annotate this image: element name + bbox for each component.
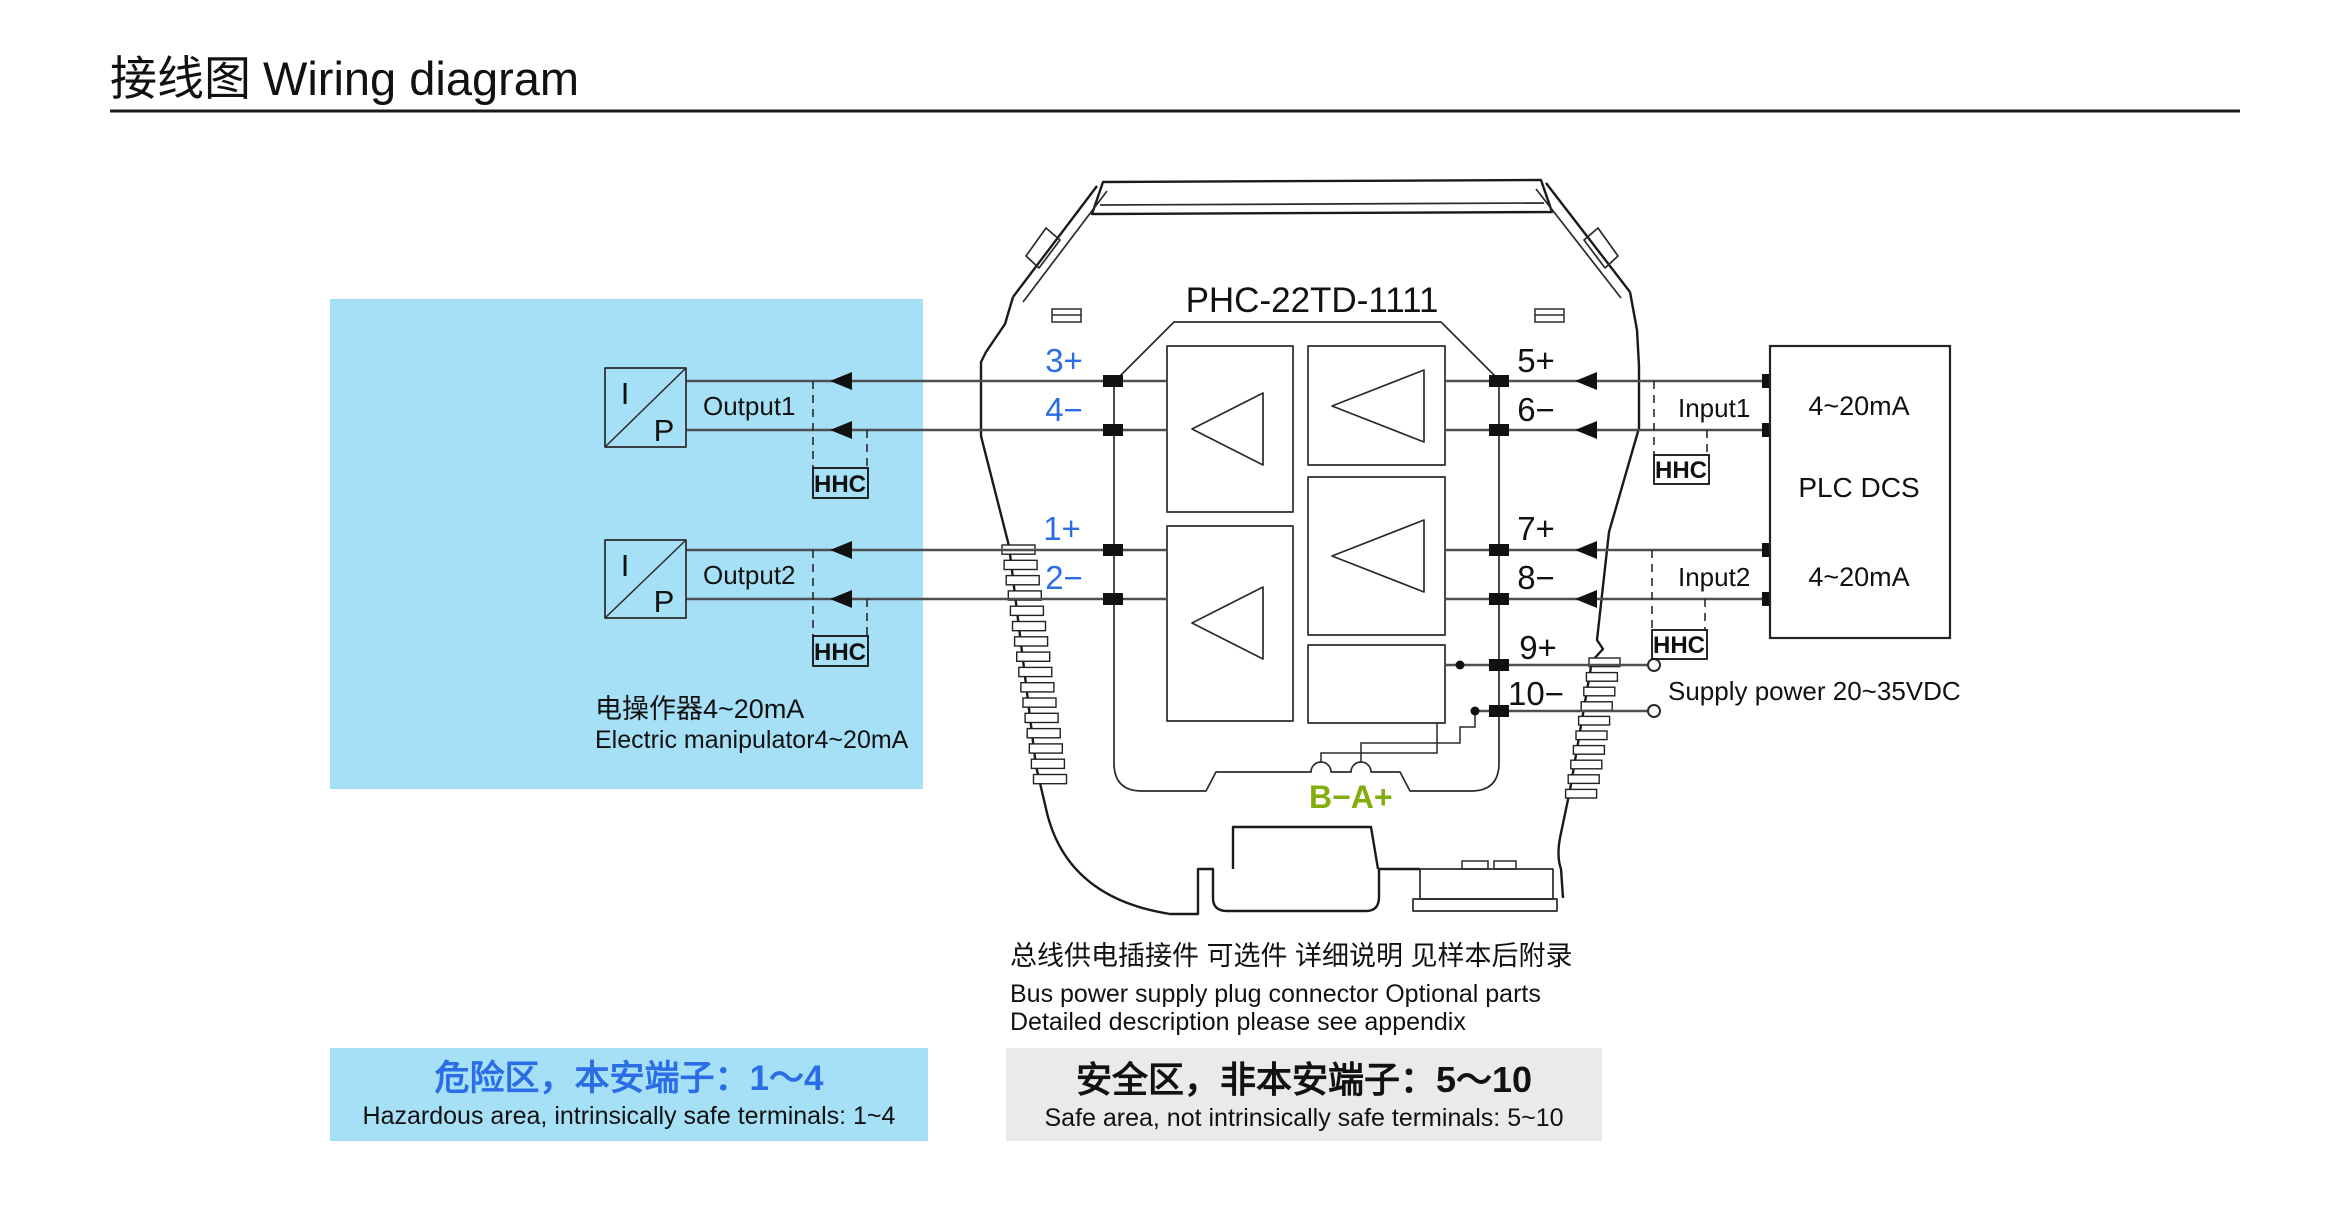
fin: [1586, 673, 1617, 682]
shell-top-cap-inner: [1100, 203, 1544, 205]
fin: [1566, 789, 1597, 798]
fin: [1006, 576, 1039, 585]
terminal-1: [1103, 544, 1123, 556]
arrow-left-icon: [1575, 421, 1597, 439]
ip-letter-i: I: [621, 376, 630, 411]
junction-dot: [1471, 707, 1480, 716]
fin: [1025, 713, 1058, 722]
hhc-label: HHC: [1655, 457, 1707, 484]
fin: [1004, 560, 1037, 569]
terminal-label-7p: 7+: [1517, 510, 1555, 547]
din-clamp-block: [1233, 827, 1378, 869]
terminal-3: [1103, 375, 1123, 387]
supply-power-label: Supply power 20~35VDC: [1668, 676, 1961, 706]
terminal-number-labels: 3+ 4− 1+ 2− 5+ 6− 7+ 8− 9+ 10−: [1043, 342, 1564, 712]
power-supply-block: [1308, 645, 1445, 723]
terminal-label-10m: 10−: [1508, 675, 1564, 712]
manipulator-caption-en: Electric manipulator4~20mA: [595, 726, 909, 754]
foot-right-block: [1420, 869, 1553, 899]
fin: [1579, 716, 1610, 725]
fin: [1573, 746, 1604, 755]
safe-zone-subtitle: Safe area, not intrinsically safe termin…: [1044, 1104, 1563, 1132]
foot-bump-1: [1462, 861, 1488, 869]
terminal-6: [1489, 424, 1509, 436]
fin: [1013, 622, 1046, 631]
internal-blocks: [1167, 346, 1475, 762]
terminal-label-8m: 8−: [1517, 559, 1555, 596]
hhc-test-points: HHC HHC HHC HHC: [813, 381, 1709, 666]
ip-letter-p: P: [654, 584, 675, 619]
channel2-input-amp-icon: [1332, 520, 1424, 592]
terminal-label-9p: 9+: [1519, 629, 1557, 666]
plc-dcs-box: 4~20mA PLC DCS 4~20mA: [1770, 346, 1950, 638]
terminal-label-4m: 4−: [1045, 391, 1083, 428]
terminal-5: [1489, 375, 1509, 387]
fin: [1023, 698, 1056, 707]
ip-letter-i: I: [621, 548, 630, 583]
bus-note-zh: 总线供电插接件 可选件 详细说明 见样本后附录: [1010, 941, 1573, 971]
terminal-2: [1103, 593, 1123, 605]
hhc-label: HHC: [814, 639, 866, 666]
bus-note-en2: Detailed description please see appendix: [1010, 1008, 1466, 1036]
input2-label: Input2: [1678, 562, 1750, 592]
foot-right-lip: [1413, 899, 1557, 911]
terminal-pads: [1103, 374, 1780, 717]
bus-a-wire: [1361, 711, 1475, 762]
wiring-diagram-canvas: 接线图 Wiring diagram: [0, 0, 2347, 1211]
shell-left-shoulder-inner: [1023, 191, 1107, 302]
ip-letter-p: P: [654, 413, 675, 448]
arrow-left-icon: [1575, 590, 1597, 608]
foot-bump-2: [1494, 861, 1516, 869]
plc-title-label: PLC DCS: [1798, 472, 1919, 503]
hhc-label: HHC: [814, 471, 866, 498]
arrow-left-icon: [1575, 372, 1597, 390]
fin: [1571, 760, 1602, 769]
terminal-8: [1489, 593, 1509, 605]
output1-label: Output1: [703, 391, 796, 421]
hazardous-zone-subtitle: Hazardous area, intrinsically safe termi…: [363, 1102, 896, 1130]
terminal-label-3p: 3+: [1045, 342, 1083, 379]
current-direction-arrows: [830, 372, 1597, 608]
channel2-output-block: [1167, 526, 1293, 721]
terminal-7: [1489, 544, 1509, 556]
arrow-left-icon: [1575, 541, 1597, 559]
shell-right-edge: [1559, 292, 1640, 898]
fin: [1576, 731, 1607, 740]
fin: [1019, 667, 1052, 676]
fin: [1584, 687, 1615, 696]
bus-terminal-label: B−A+: [1309, 779, 1393, 815]
safe-zone-title: 安全区，非本安端子：5～10: [1076, 1059, 1532, 1100]
output2-label: Output2: [703, 560, 796, 590]
terminal-label-2m: 2−: [1045, 559, 1083, 596]
channel1-output-amp-icon: [1192, 393, 1263, 465]
manipulator-caption-zh: 电操作器4~20mA: [595, 694, 804, 724]
channel1-input-amp-icon: [1332, 370, 1424, 442]
fin: [1034, 775, 1067, 784]
fin: [1015, 637, 1048, 646]
fin: [1568, 775, 1599, 784]
channel2-output-amp-icon: [1192, 587, 1263, 659]
terminal-label-5p: 5+: [1517, 342, 1555, 379]
wiring-diagram-page: 接线图 Wiring diagram: [0, 0, 2347, 1211]
fin: [1010, 606, 1043, 615]
plc-range2-label: 4~20mA: [1808, 562, 1909, 592]
terminal-label-6m: 6−: [1517, 391, 1555, 428]
shell-left-clip-tab: [1026, 228, 1060, 268]
device-model-label: PHC-22TD-1111: [1186, 281, 1439, 320]
fin: [1031, 759, 1064, 768]
terminal-9: [1489, 659, 1509, 671]
fin: [1017, 652, 1050, 661]
shell-left-shoulder: [1013, 186, 1097, 297]
hazardous-zone-title: 危险区，本安端子：1～4: [435, 1059, 824, 1098]
terminal-4: [1103, 424, 1123, 436]
junction-dot: [1456, 661, 1465, 670]
shell-top-cap: [1092, 180, 1552, 214]
hhc-label: HHC: [1653, 632, 1705, 659]
channel1-output-block: [1167, 346, 1293, 512]
fin: [1021, 683, 1054, 692]
bus-note-en1: Bus power supply plug connector Optional…: [1010, 980, 1541, 1008]
plc-range1-label: 4~20mA: [1808, 391, 1909, 421]
supply-terminal-open: [1648, 705, 1660, 717]
input1-label: Input1: [1678, 393, 1750, 423]
fin: [1029, 744, 1062, 753]
fin: [1027, 729, 1060, 738]
page-title-en: Wiring diagram: [263, 52, 579, 105]
supply-terminal-open: [1648, 659, 1660, 671]
shell-right-clip-tab: [1584, 228, 1618, 268]
terminal-10: [1489, 705, 1509, 717]
terminal-label-1p: 1+: [1043, 510, 1081, 547]
fin: [1581, 702, 1612, 711]
page-title-zh: 接线图: [110, 52, 251, 105]
right-ventilation-fins: [1566, 658, 1620, 798]
